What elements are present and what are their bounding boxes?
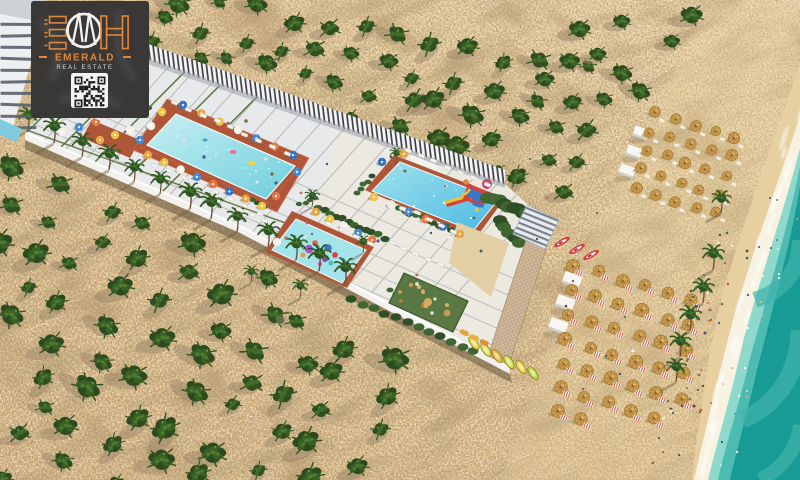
svg-text:REAL ESTATE: REAL ESTATE (56, 65, 113, 71)
svg-text:EMERALD: EMERALD (55, 53, 115, 64)
